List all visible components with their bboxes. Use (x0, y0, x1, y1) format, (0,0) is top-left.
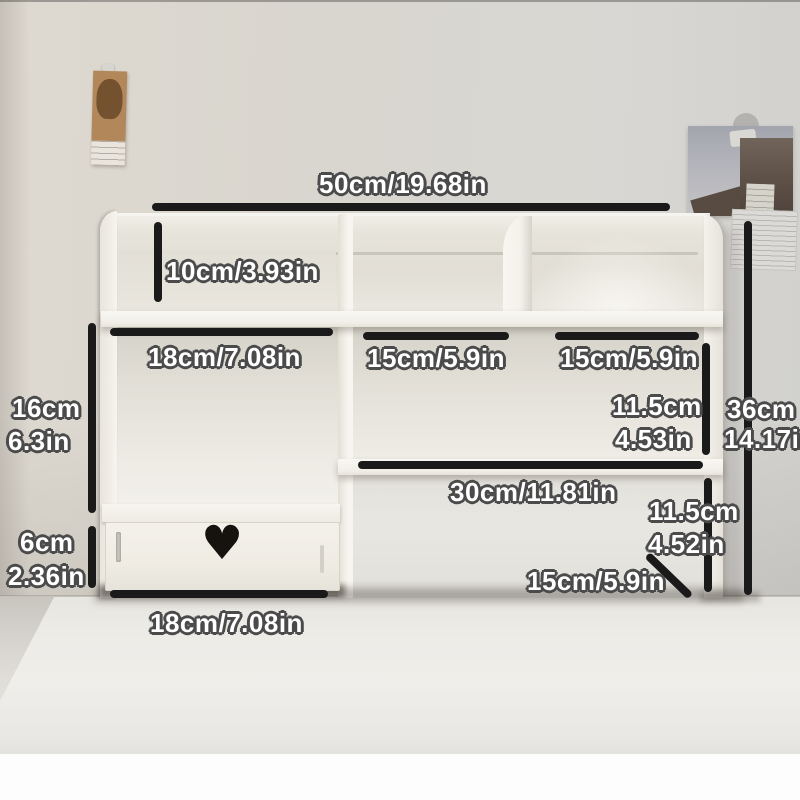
wall-left-shade (0, 0, 30, 610)
wall-card (91, 71, 127, 166)
dim-label-upper-right-height-cm: 11.5cm (612, 393, 702, 420)
bear-illustration (96, 79, 123, 120)
dim-label-left-opening-height-cm: 16cm (12, 395, 81, 422)
dim-label-left-section-width: 18cm/7.08in (148, 344, 301, 371)
dim-label-overall-height-in: 14.17in (724, 426, 800, 453)
dim-line-left-opening-height (88, 323, 96, 513)
dim-line-cubby-height (154, 222, 162, 302)
dim-label-left-opening-height-in: 6.3in (8, 428, 70, 455)
dim-label-lower-shelf-width: 30cm/11.81in (450, 479, 616, 506)
photo-bottom-margin (0, 754, 800, 800)
dim-label-upper-right-height-in: 4.53in (615, 426, 692, 453)
dim-line-left-section-width (110, 328, 333, 336)
dim-label-middle-section-width: 15cm/5.9in (367, 345, 505, 372)
drawer-slot-left (116, 532, 121, 562)
dim-line-lower-shelf-width (358, 461, 703, 469)
vertical-divider-left (338, 214, 353, 598)
dim-line-top-width (152, 203, 670, 211)
dim-label-base-right-width: 15cm/5.9in (527, 568, 665, 595)
dim-line-drawer-width (110, 590, 328, 598)
heart-cutout-icon: ♥ (201, 520, 243, 567)
photo-top-edge (0, 0, 800, 2)
cubby-back-right-sheen (532, 238, 704, 314)
dim-label-right-section-width: 15cm/5.9in (560, 345, 698, 372)
dim-label-top-width: 50cm/19.68in (319, 171, 487, 198)
dim-line-drawer-height (88, 526, 96, 588)
dim-line-middle-section-width (363, 332, 509, 340)
dim-label-overall-height-cm: 36cm (727, 396, 796, 423)
drawer-slot-right (320, 545, 324, 573)
upper-shelf-board (101, 311, 723, 327)
dim-label-lower-right-height-cm: 11.5cm (649, 498, 739, 525)
dim-label-drawer-width: 18cm/7.08in (150, 610, 303, 637)
card-footer (91, 141, 126, 166)
product-dimension-photo: ♥ 50cm/19.68in 10cm/3.93in 18cm/7.08in 1… (0, 0, 800, 800)
dim-line-upper-right-height (702, 343, 710, 455)
desk-surface (0, 596, 800, 754)
dim-line-right-section-width (555, 332, 699, 340)
dim-label-drawer-height-in: 2.36in (8, 563, 85, 590)
dim-label-cubby-height: 10cm/3.93in (166, 258, 319, 285)
newspaper-sheet (730, 209, 798, 271)
dim-label-drawer-height-cm: 6cm (20, 529, 74, 556)
vertical-divider-right (503, 216, 532, 315)
dim-label-lower-right-height-in: 4.52in (648, 531, 725, 558)
wall-poster-photo (688, 126, 793, 216)
